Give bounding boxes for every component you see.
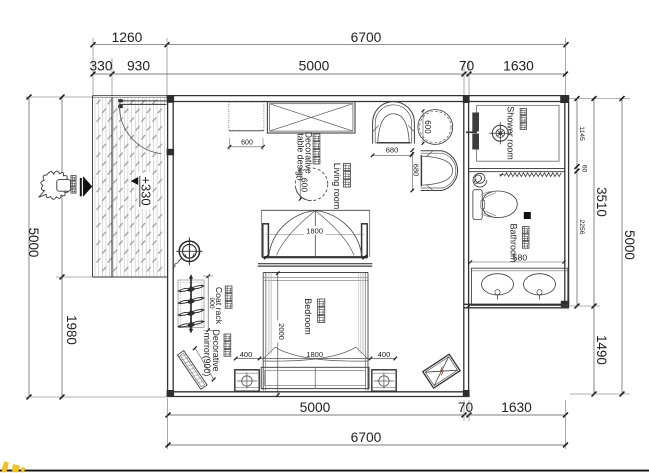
svg-text:5000: 5000: [26, 228, 41, 258]
svg-text:580: 580: [513, 253, 527, 263]
svg-text:1630: 1630: [501, 400, 532, 415]
svg-text:3510: 3510: [594, 187, 609, 217]
svg-text:6700: 6700: [351, 430, 382, 445]
svg-text:5000: 5000: [300, 400, 331, 415]
svg-text:1260: 1260: [112, 30, 143, 45]
svg-text:330: 330: [89, 59, 112, 74]
svg-text:600: 600: [241, 139, 253, 146]
svg-text:1145: 1145: [578, 126, 585, 141]
svg-text:5000: 5000: [299, 59, 330, 74]
svg-text:1800: 1800: [306, 227, 323, 236]
svg-text:Coat rack: Coat rack: [214, 287, 224, 325]
svg-text:600: 600: [300, 178, 310, 192]
svg-text:680: 680: [386, 146, 399, 155]
svg-text:680: 680: [412, 164, 421, 177]
svg-text:2256: 2256: [578, 219, 585, 234]
svg-text:70: 70: [459, 59, 475, 74]
svg-text:600: 600: [423, 120, 432, 134]
svg-text:Shower room: Shower room: [506, 106, 516, 160]
svg-text:1980: 1980: [64, 315, 79, 345]
svg-text:+330: +330: [139, 176, 154, 205]
svg-text:400: 400: [240, 350, 253, 359]
svg-text:1800: 1800: [306, 350, 323, 359]
svg-text:1490: 1490: [594, 335, 609, 365]
svg-text:table design: table design: [296, 133, 306, 181]
svg-text:900: 900: [208, 297, 215, 309]
svg-text:6700: 6700: [351, 30, 382, 45]
svg-text:70: 70: [458, 400, 474, 415]
svg-text:60: 60: [581, 165, 588, 173]
svg-text:5000: 5000: [622, 230, 637, 260]
svg-text:2000: 2000: [277, 323, 286, 340]
svg-text:mirror(900): mirror(900): [202, 333, 212, 377]
svg-text:1630: 1630: [503, 59, 534, 74]
svg-text:Bedroom: Bedroom: [303, 298, 313, 335]
svg-text:Living room: Living room: [332, 163, 342, 210]
svg-text:400: 400: [378, 350, 391, 359]
svg-text:930: 930: [127, 59, 150, 74]
